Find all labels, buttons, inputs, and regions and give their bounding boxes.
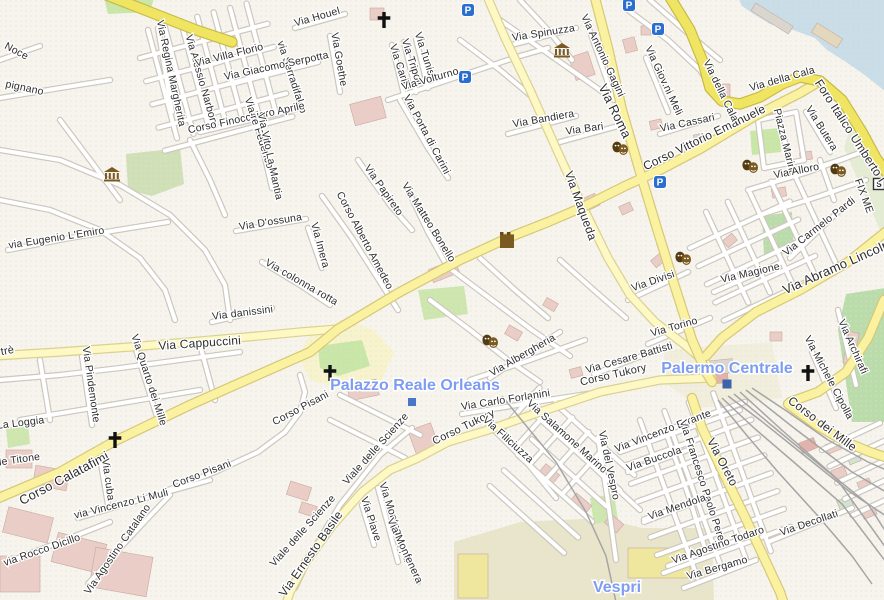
parking-icon: P bbox=[654, 176, 667, 189]
station-icon bbox=[723, 380, 732, 389]
building bbox=[458, 554, 488, 598]
street-label: trè bbox=[0, 344, 15, 358]
map-svg: PPPPPSvia SerradifalcoNocepignanoVia Reg… bbox=[0, 0, 884, 600]
marker-icon bbox=[408, 398, 416, 406]
svg-text:P: P bbox=[655, 25, 662, 36]
parking-icon: P bbox=[623, 0, 636, 12]
place-label: Palermo Centrale bbox=[661, 360, 793, 377]
svg-text:P: P bbox=[465, 6, 472, 17]
map-canvas[interactable]: PPPPPSvia SerradifalcoNocepignanoVia Reg… bbox=[0, 0, 884, 600]
svg-text:P: P bbox=[462, 73, 469, 84]
building bbox=[770, 332, 782, 341]
parking-icon: P bbox=[459, 71, 472, 84]
place-label: Palazzo Reale Orleans bbox=[330, 377, 500, 394]
svg-text:P: P bbox=[626, 1, 633, 12]
svg-text:P: P bbox=[657, 178, 664, 189]
place-label: Vespri bbox=[593, 579, 641, 596]
parking-icon: P bbox=[652, 23, 665, 36]
parking-icon: P bbox=[462, 4, 475, 17]
